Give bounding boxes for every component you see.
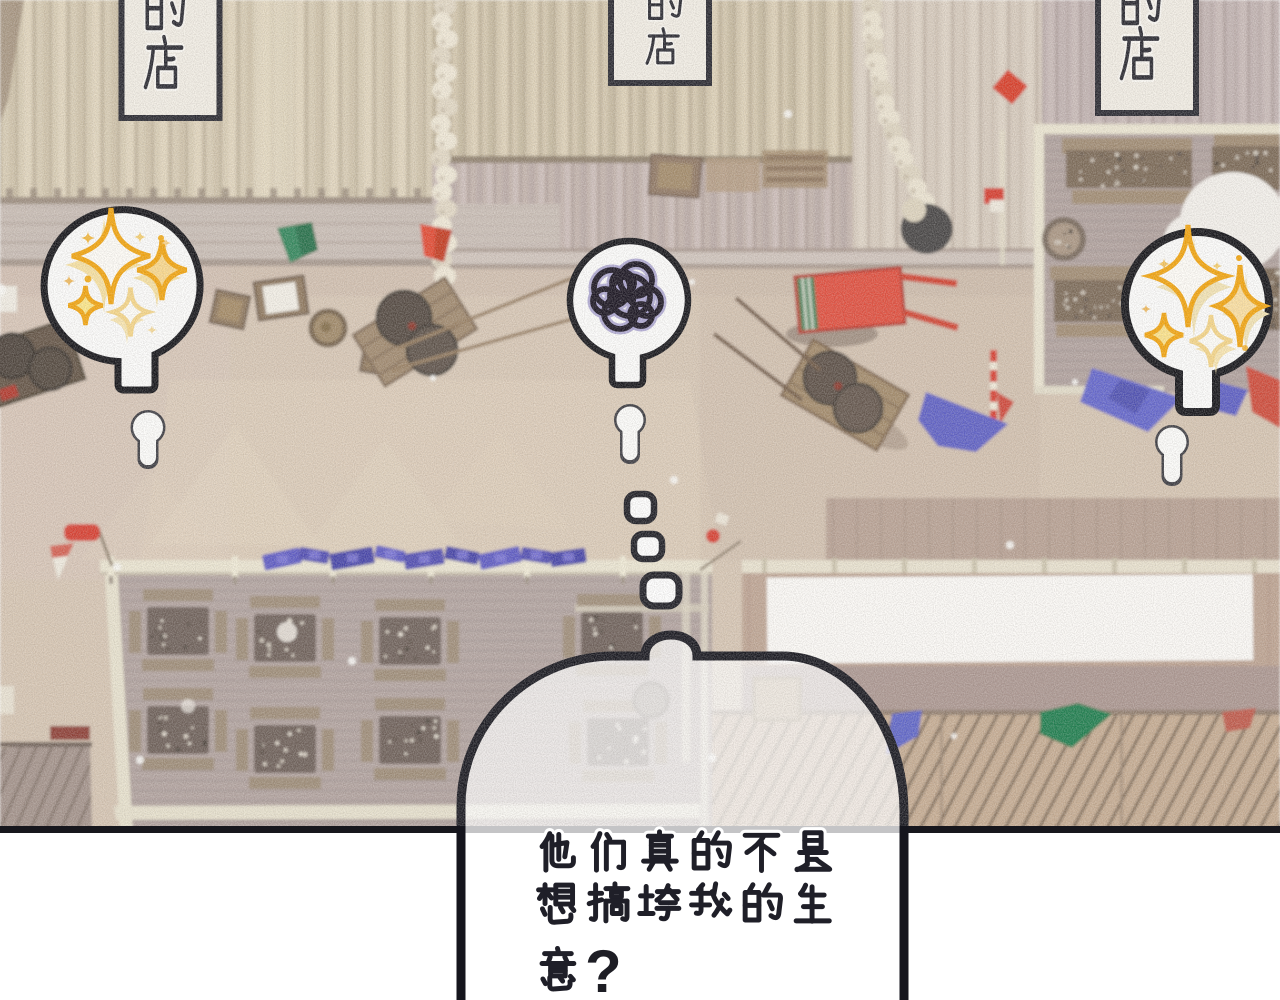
- svg-text:?: ?: [585, 938, 622, 1000]
